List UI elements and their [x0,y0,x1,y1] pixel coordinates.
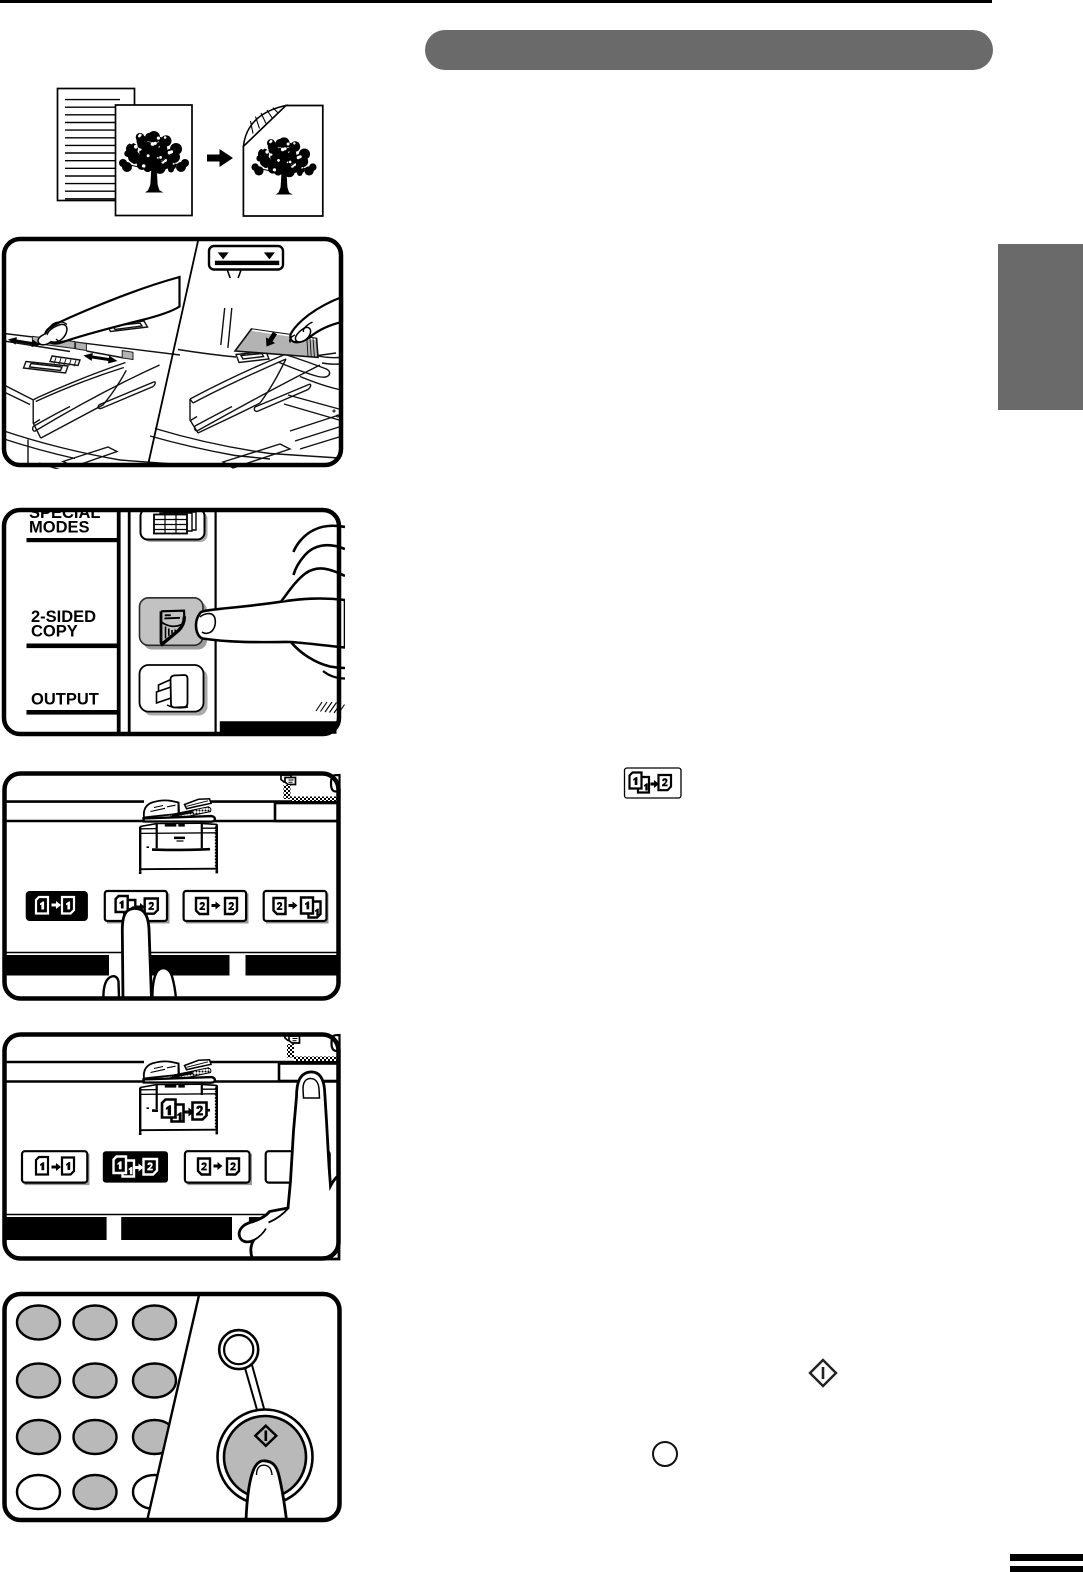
svg-text:MODES: MODES [29,519,90,537]
svg-text:COPY: COPY [31,623,78,641]
svg-text:OUTPUT: OUTPUT [31,691,99,709]
